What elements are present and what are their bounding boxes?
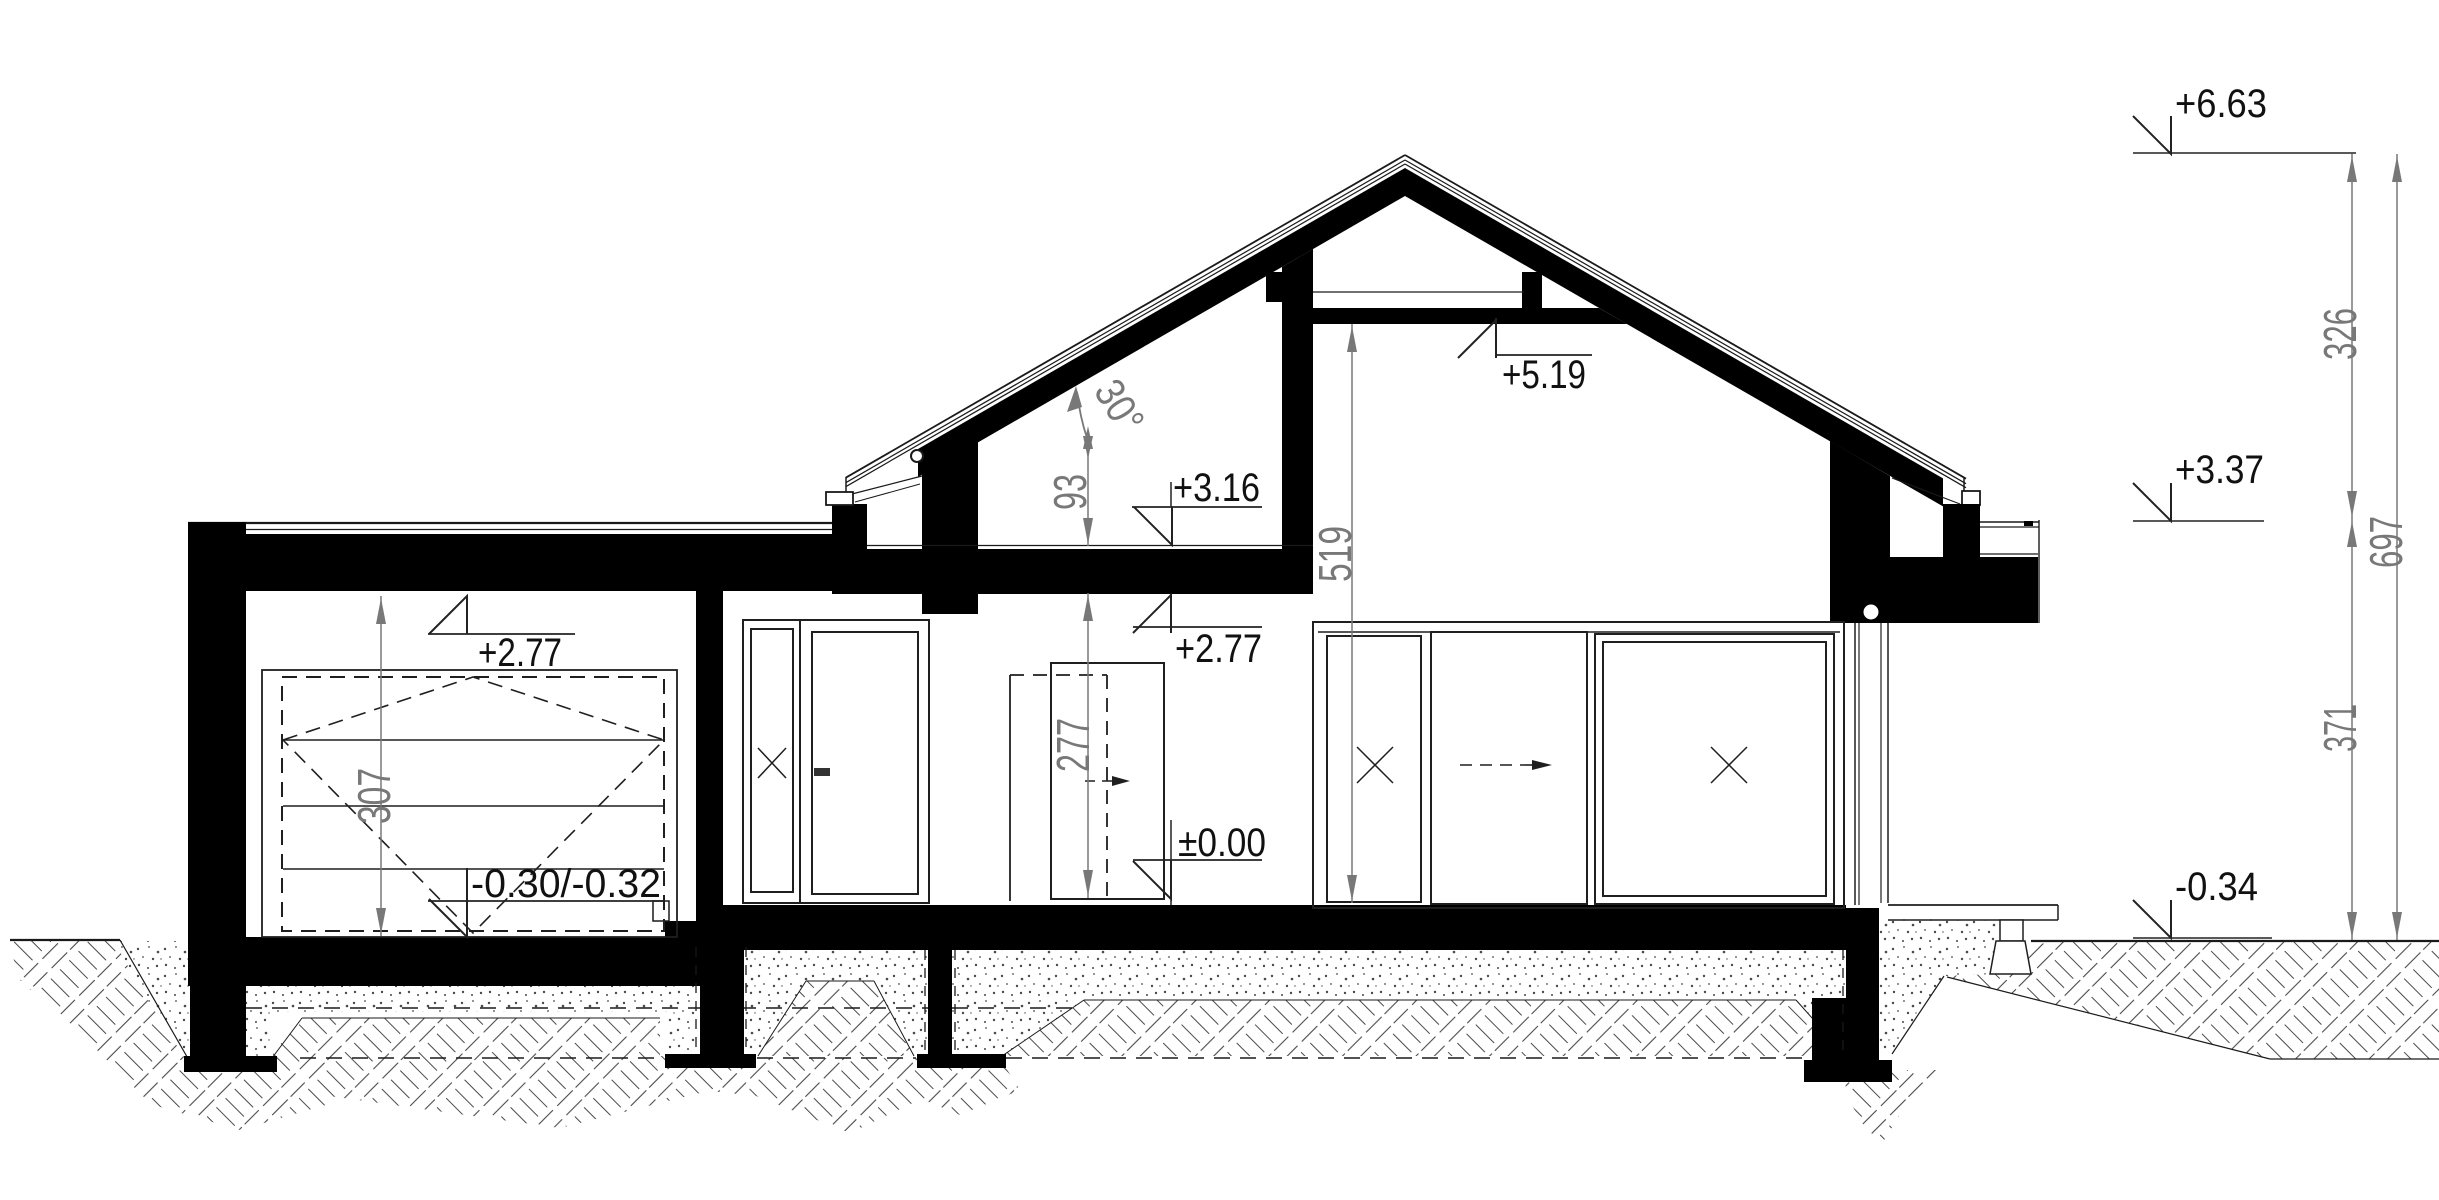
- svg-text:326: 326: [2314, 308, 2366, 360]
- svg-text:93: 93: [1044, 474, 1096, 510]
- svg-text:+3.37: +3.37: [2175, 448, 2264, 492]
- svg-text:-0.34: -0.34: [2175, 865, 2258, 909]
- svg-text:371: 371: [2314, 704, 2366, 752]
- svg-text:697: 697: [2360, 516, 2412, 568]
- svg-text:+5.19: +5.19: [1502, 353, 1586, 397]
- svg-text:±0.00: ±0.00: [1178, 821, 1266, 865]
- svg-text:+6.63: +6.63: [2175, 82, 2267, 126]
- svg-text:+3.16: +3.16: [1173, 466, 1260, 510]
- svg-text:307: 307: [348, 768, 400, 824]
- svg-text:519: 519: [1309, 526, 1361, 582]
- svg-text:+2.77: +2.77: [1175, 627, 1262, 671]
- svg-text:-0.30/-0.32: -0.30/-0.32: [471, 862, 661, 906]
- svg-text:+2.77: +2.77: [478, 631, 562, 675]
- svg-text:277: 277: [1047, 718, 1099, 772]
